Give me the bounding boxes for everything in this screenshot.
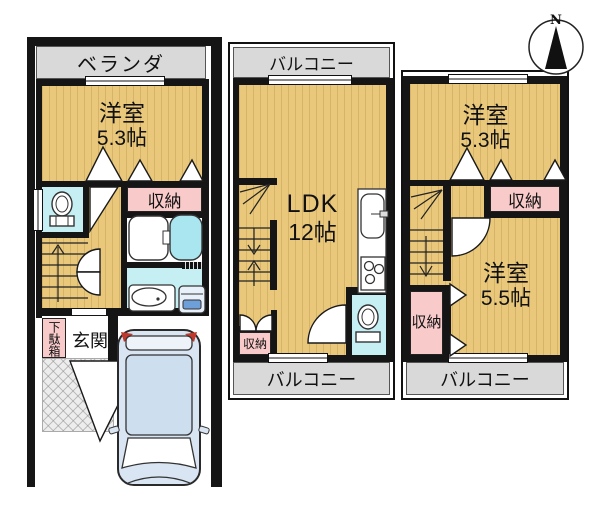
bathroom-1f-icons <box>129 215 202 260</box>
washroom-1f <box>127 268 202 308</box>
wall <box>121 212 202 218</box>
closet-2f-label: 収納 <box>239 333 271 354</box>
entrance-porch <box>42 358 114 432</box>
compass-icon <box>529 20 583 74</box>
laundry-tag <box>182 262 203 269</box>
veranda-label: ベランダ <box>36 46 206 79</box>
balcony-3f-label: バルコニー <box>406 362 564 395</box>
closet-3f-upper-label: 収納 <box>490 186 560 212</box>
entrance-label: 玄関 <box>66 318 114 362</box>
balcony-2f-bottom-label: バルコニー <box>233 362 390 395</box>
wall <box>202 79 209 316</box>
car-icon <box>108 330 209 485</box>
wall <box>271 310 277 355</box>
closet-1f-label: 収納 <box>127 186 202 212</box>
wall <box>83 187 89 238</box>
wall <box>443 186 451 281</box>
wall <box>386 78 393 362</box>
wall <box>121 308 202 316</box>
bathtub-icon <box>170 215 202 260</box>
window <box>33 189 43 231</box>
bedroom-3f-large-label: 洋室 5.5帖 <box>451 258 561 314</box>
outer-bar-left <box>27 37 35 487</box>
wall <box>346 287 386 295</box>
ldk-label: LDK 12帖 <box>239 190 386 246</box>
balcony-2f-top-label: バルコニー <box>233 47 390 78</box>
compass-needle <box>545 26 567 69</box>
shoe-cabinet-label: 下駄箱 <box>42 319 66 359</box>
entrance-door-gap <box>72 309 106 315</box>
wall <box>560 76 567 362</box>
wall <box>239 178 277 185</box>
wall <box>443 291 451 355</box>
closet-3f-lower-label: 収納 <box>410 310 443 332</box>
wall <box>403 76 410 362</box>
wall <box>42 232 89 238</box>
compass-north-label: N <box>548 13 564 27</box>
floor-plan-canvas: ベランダ 洋室 5.3帖 収納 下駄箱 玄関 バルコニー LDK 12帖 収納 … <box>0 0 600 513</box>
bedroom-3f-small-label: 洋室 5.3帖 <box>410 100 561 156</box>
toilet-2f-room <box>352 295 386 355</box>
bedroom-1f-label: 洋室 5.3帖 <box>42 98 202 154</box>
toilet-1f-room <box>42 187 83 232</box>
window <box>448 74 528 84</box>
wall <box>484 212 567 218</box>
outer-bar-top <box>27 37 222 46</box>
shower-area <box>129 216 168 260</box>
outer-bar-right <box>211 37 222 487</box>
